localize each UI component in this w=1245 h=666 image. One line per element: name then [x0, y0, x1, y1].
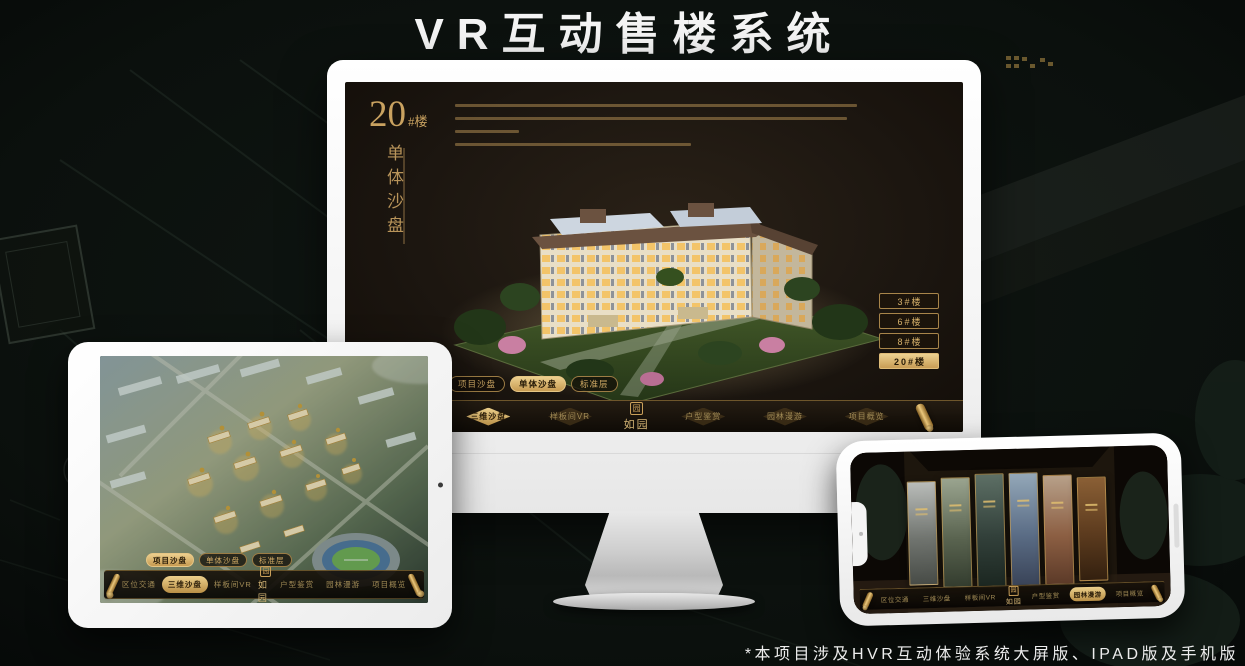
scene-panel-6[interactable] [1077, 476, 1109, 581]
nav-item-garden-roam[interactable]: 园林漫游 [320, 576, 366, 593]
nav-item-showroom-vr[interactable]: 样板间VR [208, 576, 258, 593]
brand-logo[interactable]: 园 如园 [624, 402, 650, 432]
brand-logo[interactable]: 园 如园 [1005, 585, 1022, 606]
floor-button-6[interactable]: 6#楼 [879, 313, 939, 329]
unit-subtitle-rule [403, 148, 405, 244]
floor-button-8[interactable]: 8#楼 [879, 333, 939, 349]
scroll-menu-icon[interactable] [915, 402, 935, 431]
scene-panel-2[interactable] [941, 477, 973, 588]
nav-item-3d-sandtable[interactable]: 三维沙盘 [162, 576, 208, 593]
nav-item-showroom-vr[interactable]: 样板间VR [961, 589, 1000, 604]
brand-seal-icon: 园 [630, 402, 643, 415]
ipad-tab-project-sandtable[interactable]: 项目沙盘 [146, 553, 194, 567]
scene-panel-3[interactable] [975, 473, 1007, 588]
floor-button-group: 3#楼 6#楼 8#楼 20#楼 [879, 293, 939, 369]
unit-number-suffix: #楼 [408, 114, 428, 129]
unit-number: 20 [369, 94, 406, 135]
nav-item-3d-sandtable[interactable]: 三维沙盘 [460, 407, 516, 427]
footnote: *本项目涉及HVR互动体验系统大屏版、IPAD版及手机版 [745, 640, 1239, 664]
ipad-camera-icon [438, 483, 443, 488]
nav-item-project-overview[interactable]: 项目概览 [1111, 585, 1147, 600]
brand-seal-icon: 园 [260, 566, 271, 577]
phone-notch [851, 501, 868, 565]
nav-item-location[interactable]: 区位交通 [116, 576, 162, 593]
brand-logo[interactable]: 园 如园 [258, 566, 274, 604]
ipad-navbar: 区位交通 三维沙盘 样板间VR 园 如园 户型鉴赏 园林漫游 项目概览 [104, 570, 424, 599]
nav-item-project-overview[interactable]: 项目概览 [839, 407, 895, 427]
floor-button-20[interactable]: 20#楼 [879, 353, 939, 369]
building-3d-render[interactable] [420, 157, 890, 402]
nav-item-garden-roam[interactable]: 园林漫游 [1069, 587, 1105, 602]
scene-panel-5[interactable] [1043, 474, 1075, 585]
brand-seal-icon: 园 [1008, 585, 1018, 595]
scroll-menu-icon[interactable] [862, 591, 874, 609]
nav-item-floorplan[interactable]: 户型鉴赏 [274, 576, 320, 593]
brand-name: 如园 [258, 578, 274, 604]
tab-unit-sandtable[interactable]: 单体沙盘 [510, 376, 566, 392]
nav-item-floorplan[interactable]: 户型鉴赏 [675, 407, 731, 427]
intro-paragraph-placeholder [455, 104, 857, 156]
nav-item-project-overview[interactable]: 项目概览 [366, 576, 412, 593]
tab-project-sandtable[interactable]: 项目沙盘 [449, 376, 505, 392]
scene-panel-row [907, 470, 1116, 595]
floor-button-3[interactable]: 3#楼 [879, 293, 939, 309]
unit-title: 20#楼 [369, 96, 428, 133]
phone-screen: 区位交通 三维沙盘 样板间VR 园 如园 户型鉴赏 园林漫游 项目概览 [850, 445, 1171, 614]
nav-item-3d-sandtable[interactable]: 三维沙盘 [919, 590, 955, 605]
ipad-tab-unit-sandtable[interactable]: 单体沙盘 [199, 553, 247, 567]
ipad-device: 项目沙盘 单体沙盘 标准层 区位交通 三维沙盘 样板间VR 园 如园 户型鉴赏 … [68, 342, 452, 628]
tab-standard-floor[interactable]: 标准层 [571, 376, 618, 392]
monitor-base [553, 593, 755, 610]
nav-item-garden-roam[interactable]: 园林漫游 [757, 407, 813, 427]
phone-device: 区位交通 三维沙盘 样板间VR 园 如园 户型鉴赏 园林漫游 项目概览 [836, 433, 1186, 627]
brand-name: 如园 [624, 416, 650, 432]
view-tabs: 项目沙盘 单体沙盘 标准层 [449, 376, 618, 392]
ipad-screen: 项目沙盘 单体沙盘 标准层 区位交通 三维沙盘 样板间VR 园 如园 户型鉴赏 … [100, 356, 428, 603]
scene-panel-1[interactable] [907, 481, 939, 586]
page-title: VR互动售楼系统 [0, 1, 1245, 59]
brand-name: 如园 [1006, 596, 1022, 606]
scene-panel-4[interactable] [1009, 472, 1041, 587]
monitor-stand [585, 511, 723, 597]
nav-item-showroom-vr[interactable]: 样板间VR [542, 407, 598, 427]
scroll-menu-icon[interactable] [1150, 583, 1163, 601]
nav-item-floorplan[interactable]: 户型鉴赏 [1028, 588, 1064, 603]
nav-item-location[interactable]: 区位交通 [877, 592, 913, 607]
